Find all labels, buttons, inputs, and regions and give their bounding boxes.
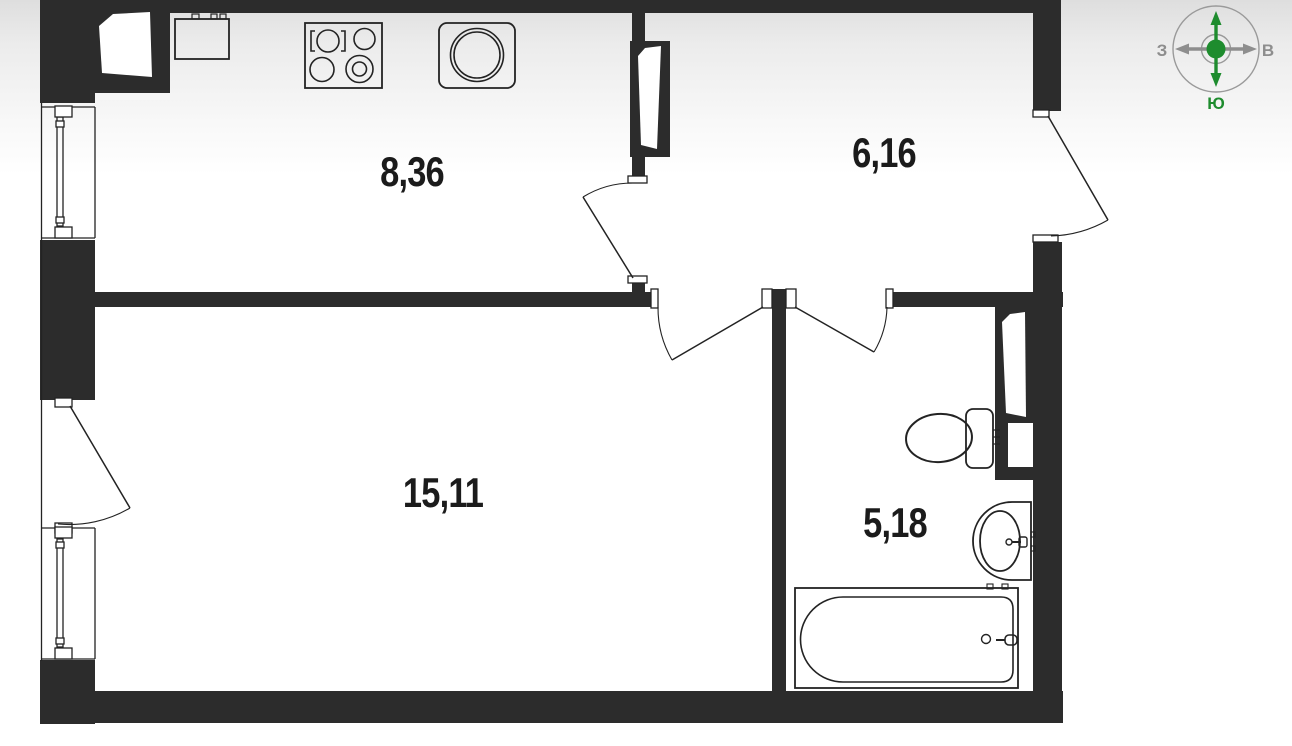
compass-center-dot [1207,40,1226,59]
vent-shaft-kitchen-opening [99,12,152,77]
kitchen-sink-icon [175,14,229,59]
compass-west-label: З [1140,41,1184,61]
entrance-door [1048,116,1108,236]
walls [40,0,1063,724]
bathtub-icon [795,584,1018,688]
toilet-icon [904,409,1000,468]
door-kitchen [583,183,634,278]
vent-openings [99,12,1033,467]
compass-north-label: С [1194,0,1238,5]
vent-shaft-bathroom-opening-2 [1008,423,1033,467]
vent-shaft-bathroom-opening [1002,312,1026,417]
washbasin-icon [973,502,1035,580]
window-kitchen [41,106,95,238]
room-area-label-kitchen: 8,36 [380,148,444,196]
window-living-room [41,527,95,659]
vent-shaft-hallway-opening [638,46,661,149]
room-area-label-living-room: 15,11 [403,469,483,517]
washing-machine-icon [439,23,515,88]
balcony-door [58,406,130,525]
compass-south-label: Ю [1194,94,1238,114]
floor-plan: 8,36 6,16 15,11 5,18 С Ю З В [0,0,1292,746]
room-area-label-hallway: 6,16 [852,129,916,177]
cooktop-icon [305,23,382,88]
door-living-room [658,307,763,360]
compass-east-label: В [1246,41,1290,61]
doors [58,116,1108,525]
floor-plan-drawing [0,0,1292,746]
door-bathroom [795,307,887,352]
room-area-label-bathroom: 5,18 [863,499,927,547]
